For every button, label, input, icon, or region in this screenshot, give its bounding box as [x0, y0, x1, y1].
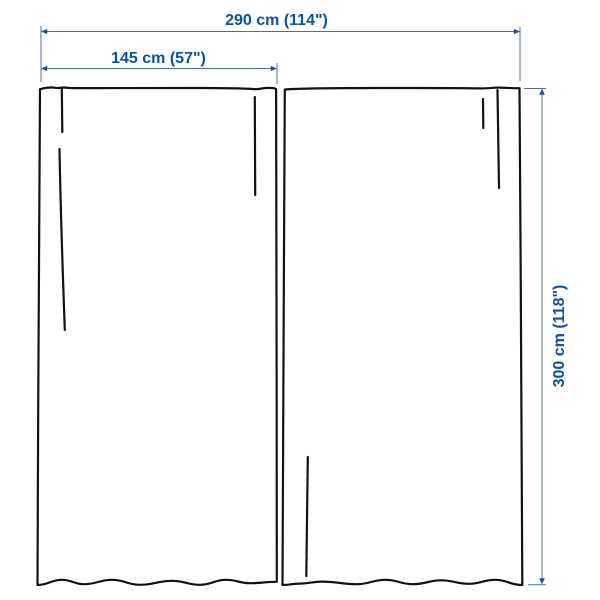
svg-text:300 cm (118"): 300 cm (118") [551, 285, 568, 388]
svg-text:290 cm (114"): 290 cm (114") [225, 12, 328, 29]
svg-text:145 cm (57"): 145 cm (57") [111, 50, 206, 67]
